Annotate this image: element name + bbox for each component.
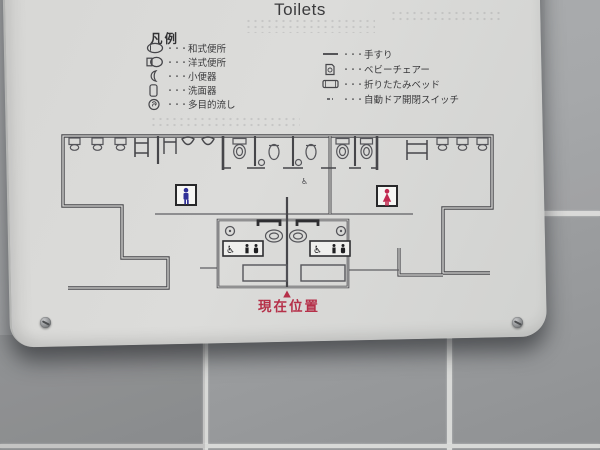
baby-bed-counter <box>135 136 176 164</box>
washbasin-icon <box>146 84 166 97</box>
braille-dots <box>390 10 500 24</box>
legend-label: 洗面器 <box>188 83 217 97</box>
legend-item: ・・・ 折りたたみベッド <box>322 77 440 91</box>
tile-shadow <box>545 0 600 215</box>
legend-label: 折りたたみベッド <box>364 77 440 91</box>
accessible-sign: ♿ <box>310 241 350 256</box>
tile-grout-vertical <box>447 326 452 450</box>
baby-chair-icon <box>322 63 342 76</box>
urinal-icon <box>146 70 166 82</box>
squat-toilet-icon <box>146 42 166 54</box>
legend-item: ・・・ 洗面器 <box>146 83 217 97</box>
handrail-icon <box>322 50 342 58</box>
legend-item: ・・・ 自動ドア開閉スイッチ <box>322 92 459 106</box>
accessible-sign: ♿ <box>223 241 263 256</box>
screw-right <box>512 317 523 328</box>
tile-shadow <box>0 335 205 450</box>
tile-grout-horizontal <box>0 444 600 448</box>
western-toilet-icon <box>146 56 166 68</box>
western-toilet <box>233 139 246 159</box>
tile-grout-vertical <box>203 332 208 450</box>
legend-label: ベビーチェアー <box>364 62 430 76</box>
auto-door-switch-icon <box>322 95 342 103</box>
current-location-marker <box>283 291 291 298</box>
legend-label: 自動ドア開閉スイッチ <box>364 92 459 106</box>
washbasin <box>69 138 126 150</box>
urinal <box>182 137 214 145</box>
squat-toilet <box>259 145 317 166</box>
screw-left <box>40 317 51 328</box>
legend-label: 手すり <box>364 47 393 61</box>
folding-bed-icon <box>322 78 342 90</box>
legend-label: 洋式便所 <box>188 55 226 69</box>
sign-title: Toilets <box>230 0 370 20</box>
legend-item: ・・・ 和式便所 <box>146 41 226 55</box>
legend-item: ・・・ 多目的流し <box>146 97 236 111</box>
mens-room-icon <box>176 185 196 205</box>
tile-grout-horizontal <box>540 211 600 216</box>
floor-plan: ♿ ♿ ♿ <box>55 126 505 316</box>
multipurpose-sink-icon <box>146 98 166 111</box>
svg-text:♿: ♿ <box>313 245 322 256</box>
photo-of-toilet-sign: { "sign": { "title": "Toilets", "legend"… <box>0 0 600 450</box>
current-location-label: 現在位置 <box>258 298 320 315</box>
legend-item: ・・・ 小便器 <box>146 69 217 83</box>
legend-item: ・・・ 手すり <box>322 47 393 61</box>
legend-label: 小便器 <box>188 69 217 83</box>
legend-label: 多目的流し <box>188 97 236 111</box>
accessible-stall-icon: ♿ <box>301 177 308 186</box>
legend-item: ・・・ ベビーチェアー <box>322 62 430 76</box>
legend-item: ・・・ 洋式便所 <box>146 55 226 69</box>
womens-room-icon <box>377 186 397 206</box>
washbasin <box>437 138 488 150</box>
braille-dots <box>245 18 375 33</box>
legend-label: 和式便所 <box>188 41 226 55</box>
plan-corridor-walls <box>155 214 413 270</box>
bench-counter <box>407 140 427 160</box>
svg-text:♿: ♿ <box>226 245 235 256</box>
multipurpose-sink <box>226 227 346 236</box>
folding-bed <box>243 265 345 281</box>
